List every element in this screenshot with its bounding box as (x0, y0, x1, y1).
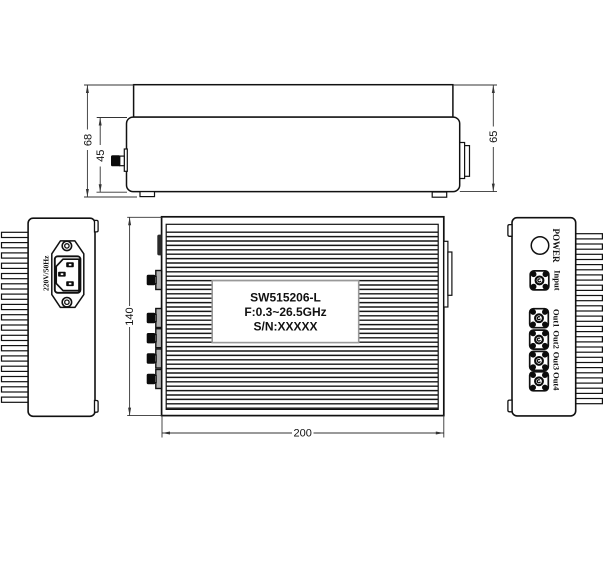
svg-text:F:0.3~26.5GHz: F:0.3~26.5GHz (244, 305, 326, 319)
svg-text:Out3: Out3 (551, 352, 561, 370)
svg-text:S/N:XXXXX: S/N:XXXXX (253, 320, 317, 334)
svg-text:POWER: POWER (551, 228, 561, 263)
svg-text:220V/50Hz: 220V/50Hz (41, 255, 50, 291)
svg-text:Out1: Out1 (551, 309, 561, 327)
svg-text:SW515206-L: SW515206-L (250, 291, 321, 305)
svg-text:68: 68 (83, 134, 95, 146)
svg-text:Out4: Out4 (551, 372, 561, 391)
svg-text:200: 200 (294, 428, 312, 440)
svg-text:Out2: Out2 (551, 330, 561, 348)
svg-text:140: 140 (124, 307, 136, 325)
svg-text:Input: Input (552, 270, 562, 290)
svg-text:45: 45 (95, 150, 107, 162)
svg-text:65: 65 (488, 131, 500, 143)
